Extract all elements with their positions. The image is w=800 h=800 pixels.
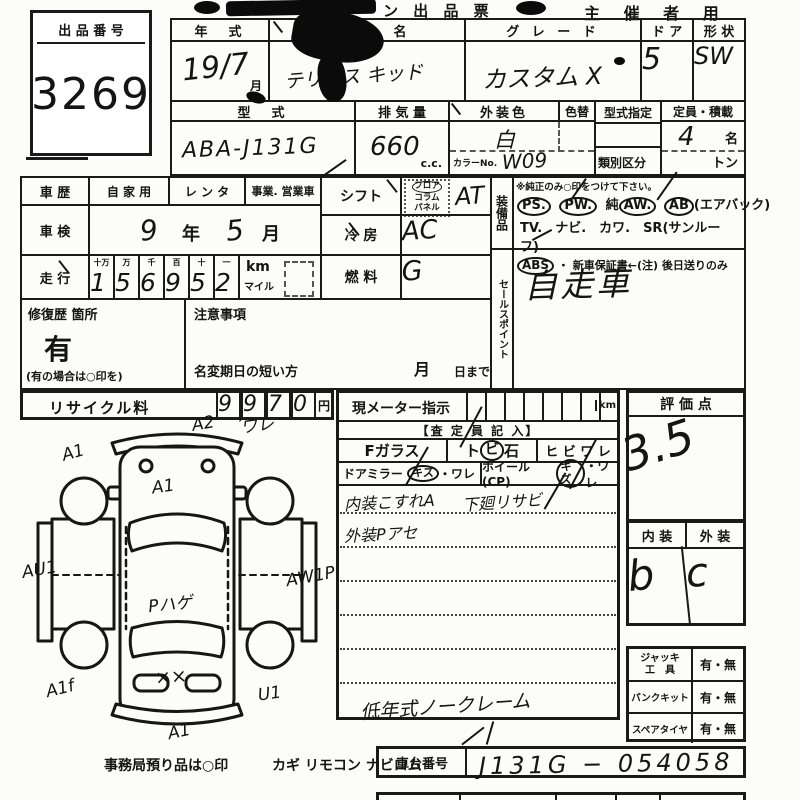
recycle-label: リサイクル料 bbox=[49, 397, 150, 418]
color-change-label: 色替 bbox=[560, 102, 594, 120]
shift-opt-floor: フロア bbox=[412, 181, 442, 193]
shape-header-cell: 形 状 bbox=[692, 18, 746, 42]
assessor-note-interior: 内装こすれA bbox=[343, 487, 435, 516]
color-value-cell: 白 カラーNo. W09 bbox=[448, 120, 596, 176]
name-change-label: 名変期日の短い方 bbox=[194, 361, 298, 380]
office-deposit-items: カギ リモコン ナビロム bbox=[272, 755, 422, 775]
front-glass-cell: Fガラス bbox=[336, 438, 448, 463]
puncture-kit-label: パンクキット bbox=[629, 682, 693, 712]
chassis-row: 車台番号 J131G − 054058 bbox=[376, 746, 746, 778]
pen-stroke bbox=[486, 721, 495, 745]
due-label: 日まで bbox=[454, 363, 490, 380]
office-deposit-label: 事務局預り品は○印 bbox=[104, 755, 228, 775]
ton-label: トン bbox=[712, 152, 738, 171]
recycle-unit-cell: 円 bbox=[314, 390, 334, 420]
meter-label: 現メーター指示 bbox=[352, 398, 450, 418]
unit-100: 百 bbox=[165, 256, 188, 268]
assessor-header: 【査 定 員 記 入】 bbox=[338, 422, 618, 438]
mileage-digit-cell: 百 9 bbox=[163, 254, 190, 300]
type-designation-label: 型式指定 bbox=[596, 102, 660, 124]
note-line bbox=[340, 546, 616, 548]
underline-mark bbox=[26, 157, 88, 160]
mile-label: マイル bbox=[244, 278, 274, 293]
shift-opt-panel: パネル bbox=[414, 203, 440, 213]
door-mirror-label: ドアミラー bbox=[343, 465, 403, 482]
color-change-header-cell: 色替 bbox=[558, 100, 596, 122]
history-header-cell: 車 歴 bbox=[20, 176, 90, 206]
color-no-label: カラーNo. bbox=[453, 156, 497, 169]
equipment-header-cell: 装備品 bbox=[490, 176, 514, 250]
meter-unit: km bbox=[595, 400, 616, 411]
note-line bbox=[340, 580, 616, 582]
partial-row bbox=[376, 792, 746, 800]
equipment-label: 装備品 bbox=[492, 178, 512, 248]
name-value: テリオス キッド bbox=[283, 57, 424, 94]
color-no-value: W09 bbox=[501, 148, 547, 174]
interior-label: 内 装 bbox=[629, 523, 687, 547]
grade-value-cell: カスタム X bbox=[464, 40, 642, 102]
inspection-year: 9 bbox=[138, 213, 159, 248]
assessor-header-row: 【査 定 員 記 入】 bbox=[336, 420, 620, 440]
year-char: 年 bbox=[182, 220, 200, 246]
grade-value: カスタム X bbox=[481, 56, 602, 95]
equip-ab-paren: (エアバック) bbox=[694, 198, 770, 213]
shape-label: 形 状 bbox=[694, 20, 744, 40]
repair-cell: 修復歴 箇所 有 (有の場合は○印を) bbox=[20, 298, 186, 390]
history-business: 事業. 営業車 bbox=[246, 178, 320, 204]
spare-tire-label: スペアタイヤ bbox=[629, 714, 693, 743]
divider bbox=[558, 122, 560, 152]
grade-label: グ レ ー ド bbox=[466, 20, 640, 40]
disp-value-cell: 660 c.c. bbox=[354, 120, 450, 176]
lot-number-label: 出 品 番 号 bbox=[37, 16, 145, 44]
sales-point-label: セールスポイント bbox=[492, 250, 512, 388]
auction-sheet: ン 出 品 票 主 催 者 用 出 品 番 号 3269 年 式 名 グ レ ー… bbox=[0, 0, 800, 800]
sales-point-value: 自走車 bbox=[523, 256, 633, 308]
sales-point-content-cell: 自走車 bbox=[512, 248, 746, 390]
recycle-unit: 円 bbox=[316, 392, 332, 418]
unit-1k: 千 bbox=[140, 256, 163, 268]
ac-value: AC bbox=[401, 215, 440, 255]
shift-options: フロア コラム パネル bbox=[404, 179, 450, 217]
redaction-dot bbox=[194, 1, 220, 14]
chassis-value: J131G − 054058 bbox=[479, 748, 734, 780]
mileage-digit-cell: 十万 1 bbox=[88, 254, 115, 300]
fuel-header-cell: 燃 料 bbox=[320, 254, 402, 300]
ac-label: 冷 房 bbox=[322, 216, 400, 254]
mileage-header-cell: 走 行 bbox=[20, 254, 90, 300]
mile-checkbox bbox=[284, 261, 314, 297]
history-label: 車 歴 bbox=[22, 178, 88, 204]
door-header-cell: ド ア bbox=[640, 18, 694, 42]
digit-2: 6 bbox=[140, 268, 156, 300]
disp-header-cell: 排 気 量 bbox=[354, 100, 450, 122]
class-division-label: 類別区分 bbox=[596, 148, 660, 177]
sales-point-header-cell: セールスポイント bbox=[490, 248, 514, 390]
assessor-note-exterior: 外装Pアセ bbox=[343, 519, 417, 547]
history-rental-cell: レ ン タ bbox=[168, 176, 246, 206]
note-line bbox=[340, 614, 616, 616]
inspection-value-cell: 9 年 5 月 bbox=[88, 204, 322, 256]
ac-value-cell: AC bbox=[400, 214, 492, 256]
recycle-d0: 9 bbox=[218, 392, 232, 418]
repair-note: (有の場合は○印を) bbox=[26, 368, 123, 384]
repair-value: 有 bbox=[44, 328, 72, 368]
diagram-note-hood: A1 bbox=[151, 476, 176, 499]
wheel-label: ホイール(CP) bbox=[482, 458, 551, 489]
equip-jun: 純 bbox=[606, 198, 619, 213]
inspection-month: 5 bbox=[224, 213, 245, 248]
door-label: ド ア bbox=[642, 20, 692, 40]
equip-pw: PW. bbox=[559, 197, 597, 216]
recycle-digit-cell: 9 bbox=[216, 390, 241, 420]
lot-number: 3269 bbox=[33, 44, 149, 144]
year-header-cell: 年 式 bbox=[170, 18, 270, 42]
door-value-cell: 5 bbox=[640, 40, 694, 102]
fuel-value: G bbox=[401, 255, 425, 298]
mileage-label: 走 行 bbox=[22, 256, 88, 298]
inspection-label: 車 検 bbox=[22, 206, 88, 254]
shape-value: SW bbox=[694, 42, 733, 100]
model-header-cell: 型 式 bbox=[170, 100, 356, 122]
disp-label: 排 気 量 bbox=[356, 102, 448, 120]
class-division-cell: 類別区分 bbox=[594, 146, 662, 176]
capacity-header-cell: 定員・積載 bbox=[660, 100, 746, 122]
diagram-note-rear: ×× bbox=[154, 665, 187, 689]
meter-row: 現メーター指示 km bbox=[336, 390, 620, 422]
digit-3: 9 bbox=[165, 268, 181, 300]
digit-5: 2 bbox=[215, 268, 231, 300]
model-value: ABA-J131G bbox=[182, 134, 319, 164]
spare-tire-value: 有・無 bbox=[693, 714, 743, 743]
wheel-ware: ・ワレ bbox=[585, 457, 618, 491]
disp-value: 660 bbox=[370, 132, 420, 162]
jack-tools-label: ジャッキ工 具 bbox=[629, 649, 693, 680]
km-label: km bbox=[246, 259, 270, 275]
model-label: 型 式 bbox=[172, 102, 354, 120]
wheel-cell: ホイール(CP) キズ・ワレ bbox=[480, 461, 620, 486]
month-char: 月 bbox=[262, 220, 280, 246]
evaluation-score: 3.5 bbox=[615, 408, 717, 530]
lot-number-box: 出 品 番 号 3269 bbox=[30, 10, 152, 156]
mileage-digit-cell: 千 6 bbox=[138, 254, 165, 300]
shape-value-cell: SW bbox=[692, 40, 746, 102]
repair-label: 修復歴 箇所 bbox=[28, 304, 98, 323]
history-private: 自 家 用 bbox=[90, 178, 168, 204]
note-line bbox=[340, 648, 616, 650]
ac-header-cell: 冷 房 bbox=[320, 214, 402, 256]
digit-1: 5 bbox=[115, 268, 131, 300]
unit-10k: 万 bbox=[115, 256, 138, 268]
shift-opt-column: コラム bbox=[414, 193, 439, 203]
mileage-digit-cell: 十 5 bbox=[188, 254, 215, 300]
jack-tools-value: 有・無 bbox=[693, 649, 743, 680]
diagram-note-roof-crack-code: A2 bbox=[190, 412, 216, 436]
inspection-header-cell: 車 検 bbox=[20, 204, 90, 256]
evaluation-box: 評 価 点 3.5 bbox=[626, 390, 746, 522]
pen-stroke bbox=[461, 727, 484, 746]
diagram-note-roof-crack: ワレ bbox=[238, 409, 275, 438]
year-label: 年 式 bbox=[172, 20, 268, 40]
mileage-unit-cell: km マイル bbox=[238, 254, 322, 300]
color-label: 外装色 bbox=[450, 102, 558, 120]
recycle-d3: 0 bbox=[293, 392, 307, 418]
caution-cell: 注意事項 名変期日の短い方 月 日まで bbox=[184, 298, 492, 390]
diagram-note-rear-bumper: A1 bbox=[166, 720, 192, 744]
month-blank: 月 bbox=[414, 356, 430, 380]
note-line bbox=[340, 682, 616, 684]
front-glass-label: Fガラス bbox=[338, 440, 446, 461]
history-private-cell: 自 家 用 bbox=[88, 176, 170, 206]
diagram-note-roof-paint: Pハゲ bbox=[147, 588, 194, 617]
interior-exterior-box: 内 装 外 装 b c bbox=[626, 520, 746, 626]
caution-label: 注意事項 bbox=[194, 304, 246, 323]
capacity-unit: 名 bbox=[725, 128, 738, 147]
diagram-note-rear-right: U1 bbox=[257, 682, 283, 705]
history-business-cell: 事業. 営業車 bbox=[244, 176, 322, 206]
shift-value: AT bbox=[454, 181, 485, 211]
equip-ps: PS. bbox=[517, 197, 551, 216]
accessories-box: ジャッキ工 具 有・無 パンクキット 有・無 スペアタイヤ 有・無 bbox=[626, 646, 746, 742]
interior-grade: b bbox=[625, 546, 691, 630]
mirror-ware: ・ワレ bbox=[439, 465, 475, 482]
door-value: 5 bbox=[642, 42, 661, 100]
unit-100k: 十万 bbox=[90, 256, 113, 268]
mileage-digit-cell: 万 5 bbox=[113, 254, 140, 300]
fuel-label: 燃 料 bbox=[322, 256, 400, 298]
equipment-content-cell: ※純正のみ○印をつけて下さい。 PS. PW. 純AW. AB(エアバック) T… bbox=[512, 176, 746, 250]
equip-aw: AW. bbox=[619, 197, 657, 216]
capacity-value-cell: 4 名 トン bbox=[660, 120, 746, 176]
digit-4: 5 bbox=[190, 268, 206, 300]
type-designation-cell: 型式指定 bbox=[594, 100, 662, 148]
model-value-cell: ABA-J131G bbox=[170, 120, 356, 176]
exterior-label: 外 装 bbox=[687, 523, 743, 547]
exterior-grade: c bbox=[684, 547, 745, 629]
equipment-note: ※純正のみ○印をつけて下さい。 bbox=[514, 178, 744, 194]
capacity-value: 4 bbox=[678, 122, 695, 152]
mileage-digit-cell: 一 2 bbox=[213, 254, 240, 300]
grade-header-cell: グ レ ー ド bbox=[464, 18, 642, 42]
unit-10: 十 bbox=[190, 256, 213, 268]
year-value: 19/7 bbox=[180, 47, 251, 89]
shift-value-cell: フロア コラム パネル AT bbox=[400, 176, 492, 216]
redaction-dot bbox=[516, 1, 546, 15]
color-header-cell: 外装色 bbox=[448, 100, 560, 122]
unit-1: 一 bbox=[215, 256, 238, 268]
recycle-digit-cell: 0 bbox=[291, 390, 316, 420]
digit-0: 1 bbox=[90, 268, 106, 300]
capacity-label: 定員・積載 bbox=[662, 102, 744, 120]
ink-spot bbox=[614, 57, 625, 65]
disp-unit: c.c. bbox=[421, 157, 442, 170]
puncture-kit-value: 有・無 bbox=[693, 682, 743, 712]
stone-pre: ト bbox=[465, 440, 480, 461]
equip-ab: AB bbox=[664, 197, 694, 216]
history-rental: レ ン タ bbox=[170, 178, 244, 204]
door-mirror-cell: ドアミラー キズ・ワレ bbox=[336, 461, 482, 486]
fuel-value-cell: G bbox=[400, 254, 492, 300]
